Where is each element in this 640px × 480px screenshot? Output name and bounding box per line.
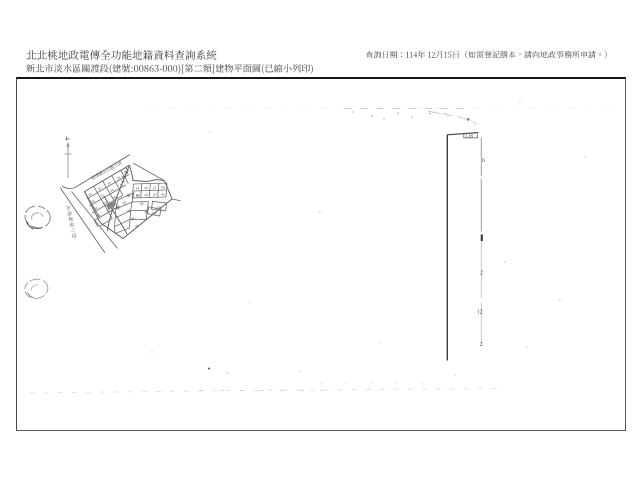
- svg-text:2: 2: [480, 271, 483, 277]
- svg-text:58: 58: [161, 185, 165, 189]
- svg-text:14: 14: [136, 186, 140, 190]
- svg-text:12: 12: [477, 310, 483, 316]
- svg-text:47: 47: [153, 193, 157, 197]
- svg-text:1-8: 1-8: [156, 205, 161, 210]
- svg-text:45: 45: [161, 192, 165, 196]
- svg-text:1-9: 1-9: [151, 211, 156, 216]
- svg-text:18: 18: [124, 171, 129, 176]
- svg-text:21: 21: [90, 199, 95, 204]
- svg-text:12: 12: [153, 186, 157, 190]
- svg-text:2: 2: [480, 342, 483, 348]
- svg-text:22: 22: [100, 193, 105, 198]
- svg-text:14: 14: [97, 186, 102, 191]
- svg-text:41: 41: [96, 213, 101, 218]
- svg-text:25: 25: [119, 182, 124, 187]
- svg-text:25: 25: [130, 216, 135, 221]
- svg-text:45: 45: [144, 186, 148, 190]
- svg-text:26: 26: [134, 223, 139, 228]
- svg-text:43: 43: [136, 193, 140, 197]
- svg-text:24: 24: [109, 188, 114, 193]
- svg-text:15: 15: [107, 181, 112, 186]
- svg-text:6: 6: [482, 158, 485, 164]
- svg-text:16: 16: [116, 175, 121, 180]
- svg-text:45: 45: [144, 193, 148, 197]
- svg-text:1.99: 1.99: [466, 134, 474, 139]
- svg-text:31: 31: [93, 206, 98, 211]
- svg-text:12: 12: [87, 192, 92, 197]
- svg-text:35: 35: [112, 195, 117, 200]
